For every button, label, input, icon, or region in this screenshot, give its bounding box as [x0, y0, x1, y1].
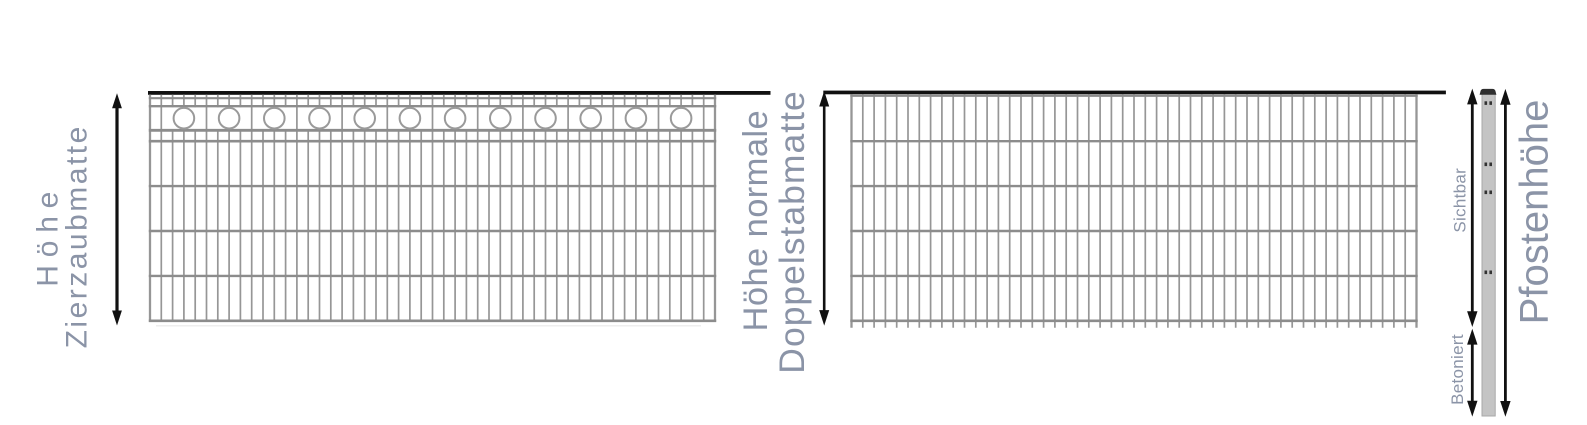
- svg-text:Betoniert: Betoniert: [1448, 334, 1467, 405]
- svg-text:Höhe normale: Höhe normale: [737, 110, 775, 332]
- svg-text:Sichtbar: Sichtbar: [1451, 168, 1470, 233]
- svg-text:Pfostenhöhe: Pfostenhöhe: [1513, 100, 1557, 325]
- svg-text:Höhe: Höhe: [31, 184, 64, 287]
- svg-text:Doppelstabmatte: Doppelstabmatte: [772, 90, 812, 373]
- svg-text:Zierzaubmatte: Zierzaubmatte: [61, 124, 94, 348]
